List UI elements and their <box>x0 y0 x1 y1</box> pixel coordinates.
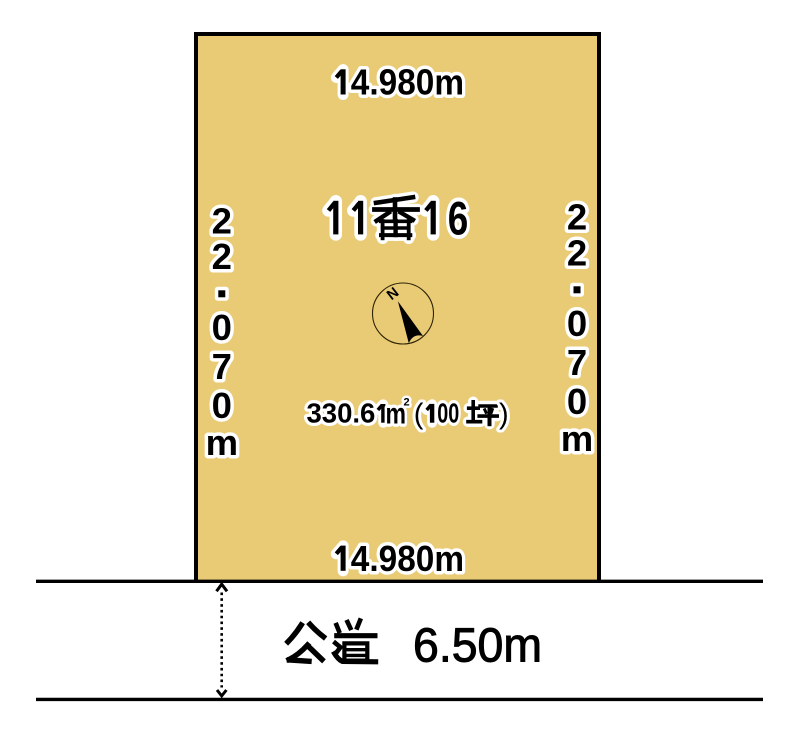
svg-text:2: 2 <box>567 233 587 274</box>
svg-text:2: 2 <box>212 236 232 277</box>
svg-text:4.980m: 4.980m <box>351 62 464 103</box>
svg-text:6.50m: 6.50m <box>413 620 542 673</box>
svg-text:): ) <box>499 399 509 431</box>
svg-text:0: 0 <box>212 307 232 348</box>
svg-text:m: m <box>206 422 238 463</box>
svg-text:m: m <box>561 418 593 459</box>
svg-text:0: 0 <box>212 385 232 426</box>
svg-text:330.6: 330.6 <box>307 398 376 429</box>
svg-text:2: 2 <box>567 196 587 237</box>
svg-text:00: 00 <box>437 398 459 429</box>
svg-text:6: 6 <box>448 192 469 245</box>
svg-text:2: 2 <box>403 397 409 409</box>
svg-text:4.980m: 4.980m <box>351 538 464 579</box>
svg-text:(: ( <box>414 399 424 431</box>
svg-text:7: 7 <box>212 346 232 387</box>
svg-text:7: 7 <box>567 342 587 383</box>
svg-text:0: 0 <box>567 303 587 344</box>
svg-text:0: 0 <box>567 381 587 422</box>
